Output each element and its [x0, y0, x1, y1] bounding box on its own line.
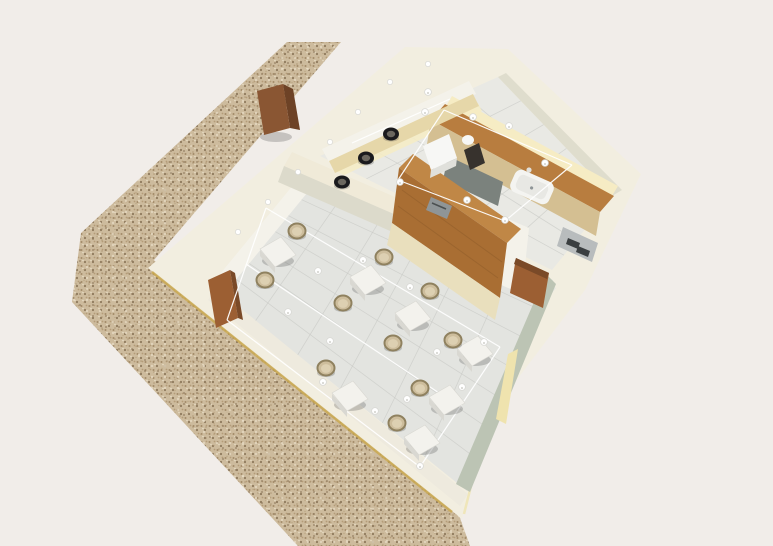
- pendant-light-base: [419, 466, 421, 468]
- rattan-chair: [411, 381, 429, 398]
- pendant-light-group: [315, 268, 322, 275]
- facade-downlight: [265, 199, 270, 204]
- facade-downlight: [327, 139, 332, 144]
- chair-seat: [448, 336, 458, 345]
- cafe-3d-render: [0, 0, 773, 546]
- rattan-chair: [444, 333, 462, 350]
- pendant-light-group: [285, 309, 292, 316]
- rattan-chair: [317, 361, 335, 378]
- pendant-light-group: [372, 408, 379, 415]
- pendant-light-base: [287, 312, 289, 314]
- pendant-light-group: [470, 114, 477, 121]
- pendant-light-group: [502, 217, 509, 224]
- pendant-light-base: [436, 352, 438, 354]
- pendant-light-group: [464, 197, 471, 204]
- pendant-light-group: [434, 349, 441, 356]
- pendant-light-base: [406, 399, 408, 401]
- chair-seat: [338, 299, 348, 308]
- pendant-light-group: [422, 109, 429, 116]
- pendant-light-base: [329, 341, 331, 343]
- stool-seat-center: [387, 131, 395, 137]
- chair-seat: [292, 227, 302, 236]
- facade-downlight: [425, 61, 430, 66]
- coffee-machine-cylinder: [462, 135, 474, 145]
- pendant-light-group: [506, 123, 513, 130]
- bar-stool-group: [358, 152, 374, 166]
- rattan-chair: [256, 273, 274, 290]
- pendant-light-base: [483, 342, 485, 344]
- pendant-light-base: [461, 387, 463, 389]
- chair-seat: [415, 384, 425, 393]
- pendant-light-base: [472, 117, 474, 119]
- pendant-light-group: [417, 463, 424, 470]
- facade-downlight: [235, 229, 240, 234]
- chair-seat: [388, 339, 398, 348]
- pendant-light-base: [409, 287, 411, 289]
- pendant-light-base: [322, 382, 324, 384]
- render-canvas: [0, 0, 773, 546]
- chair-seat: [260, 276, 270, 285]
- rattan-chair: [375, 250, 393, 267]
- pendant-light-group: [425, 89, 432, 96]
- chair-seat: [321, 364, 331, 373]
- facade-downlight: [355, 109, 360, 114]
- bar-stool-group: [383, 128, 399, 142]
- rattan-chair: [388, 416, 406, 433]
- rattan-chair: [334, 296, 352, 313]
- stool-seat-center: [362, 155, 370, 161]
- pendant-light-group: [404, 396, 411, 403]
- pendant-light-group: [481, 339, 488, 346]
- pendant-light-group: [397, 179, 404, 186]
- pendant-light-base: [544, 163, 546, 165]
- rattan-chair: [288, 224, 306, 241]
- pendant-light-group: [320, 379, 327, 386]
- faucet: [526, 167, 531, 172]
- pendant-light-group: [459, 384, 466, 391]
- facade-downlight: [295, 169, 300, 174]
- stool-seat-center: [338, 179, 346, 185]
- chair-seat: [425, 287, 435, 296]
- pendant-light-base: [504, 220, 506, 222]
- pendant-light-group: [360, 257, 367, 264]
- pendant-light-base: [362, 260, 364, 262]
- pendant-light-base: [374, 411, 376, 413]
- chair-seat: [379, 253, 389, 262]
- pendant-light-base: [427, 92, 429, 94]
- pendant-light-group: [327, 338, 334, 345]
- rattan-chair: [421, 284, 439, 301]
- facade-downlight: [387, 79, 392, 84]
- bar-stool-group: [334, 176, 350, 190]
- chair-seat: [392, 419, 402, 428]
- pendant-light-base: [399, 182, 401, 184]
- rattan-chair: [384, 336, 402, 353]
- pendant-light-group: [407, 284, 414, 291]
- pendant-light-base: [424, 112, 426, 114]
- pendant-light-base: [317, 271, 319, 273]
- pendant-light-base: [508, 126, 510, 128]
- pendant-light-base: [466, 200, 468, 202]
- pendant-light-group: [542, 160, 549, 167]
